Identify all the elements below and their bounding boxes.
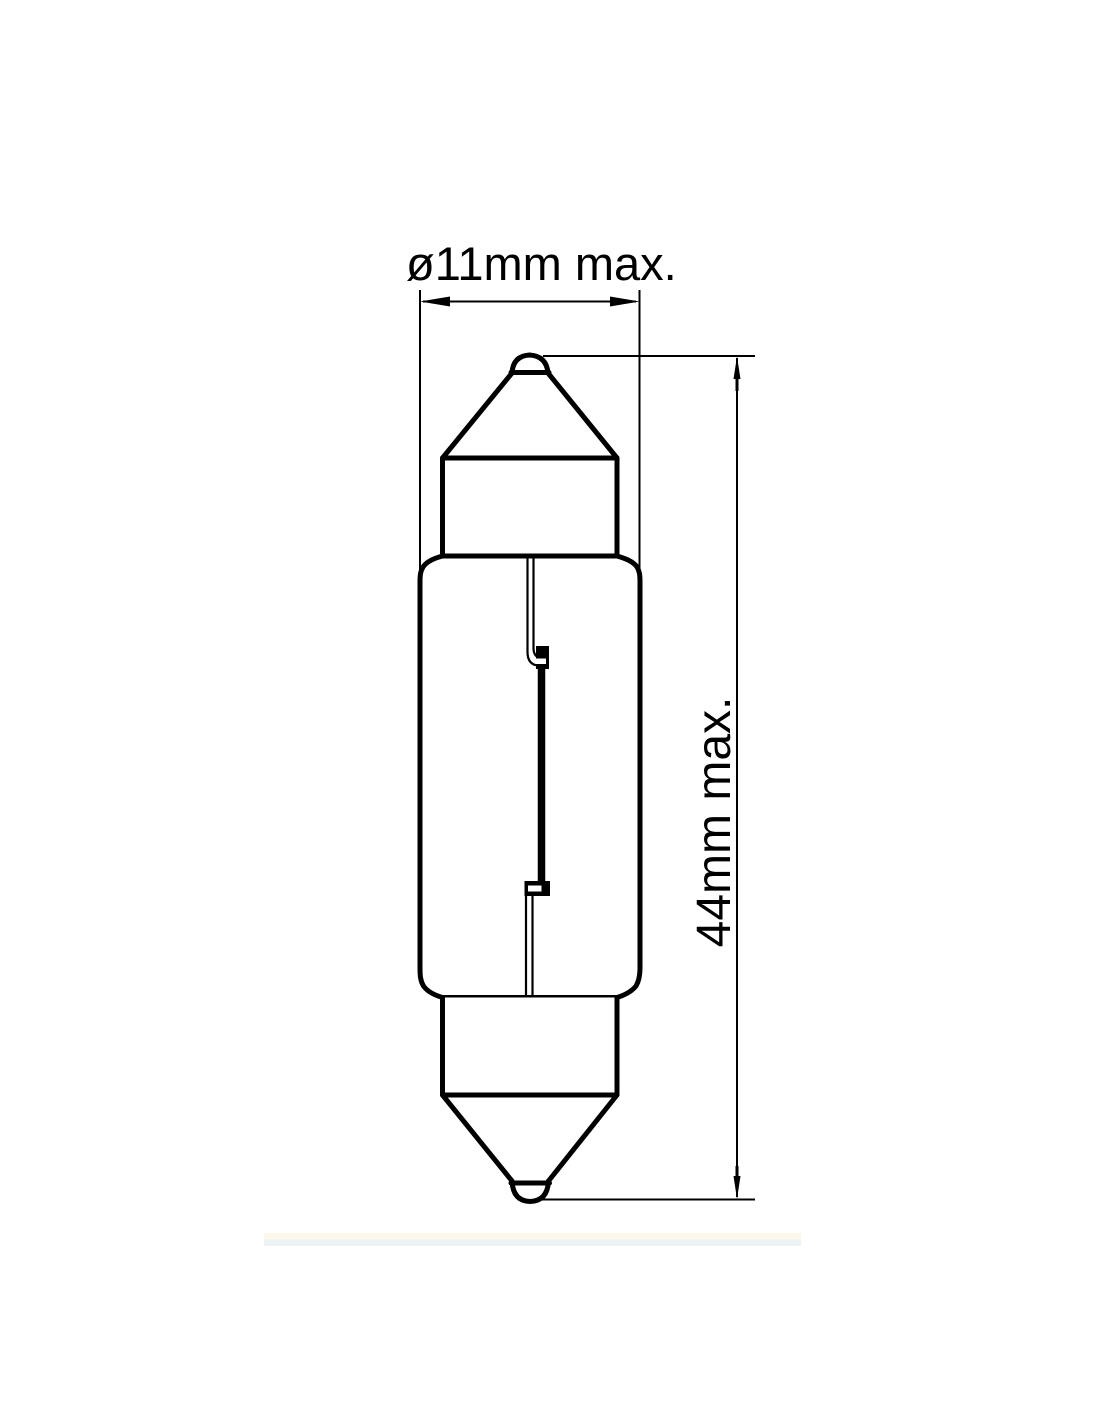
diameter-arrow-right [610,297,640,307]
upper-clamp-slot [536,659,546,665]
length-arrow-down [734,1166,741,1199]
scan-artifact-band [264,1233,801,1246]
bottom-cap [443,998,618,1096]
festoon-bulb-drawing [0,0,1100,1422]
length-arrow-up [734,357,741,392]
top-cap [443,458,618,556]
bottom-cone-left-side [443,1095,513,1181]
diameter-arrow-left [420,297,450,307]
bulb-outline [420,355,640,1202]
length-dimension-label: 44mm max. [690,692,740,952]
bottom-cone-right-side [549,1095,618,1181]
top-cone-left-side [443,373,513,458]
top-cone-right-side [548,373,617,458]
glass-body [420,556,640,998]
diameter-dimension-label: ø11mm max. [406,240,677,288]
drawing-canvas: ø11mm max. 44mm max. [0,0,1100,1422]
lower-clamp-slot [528,886,542,892]
